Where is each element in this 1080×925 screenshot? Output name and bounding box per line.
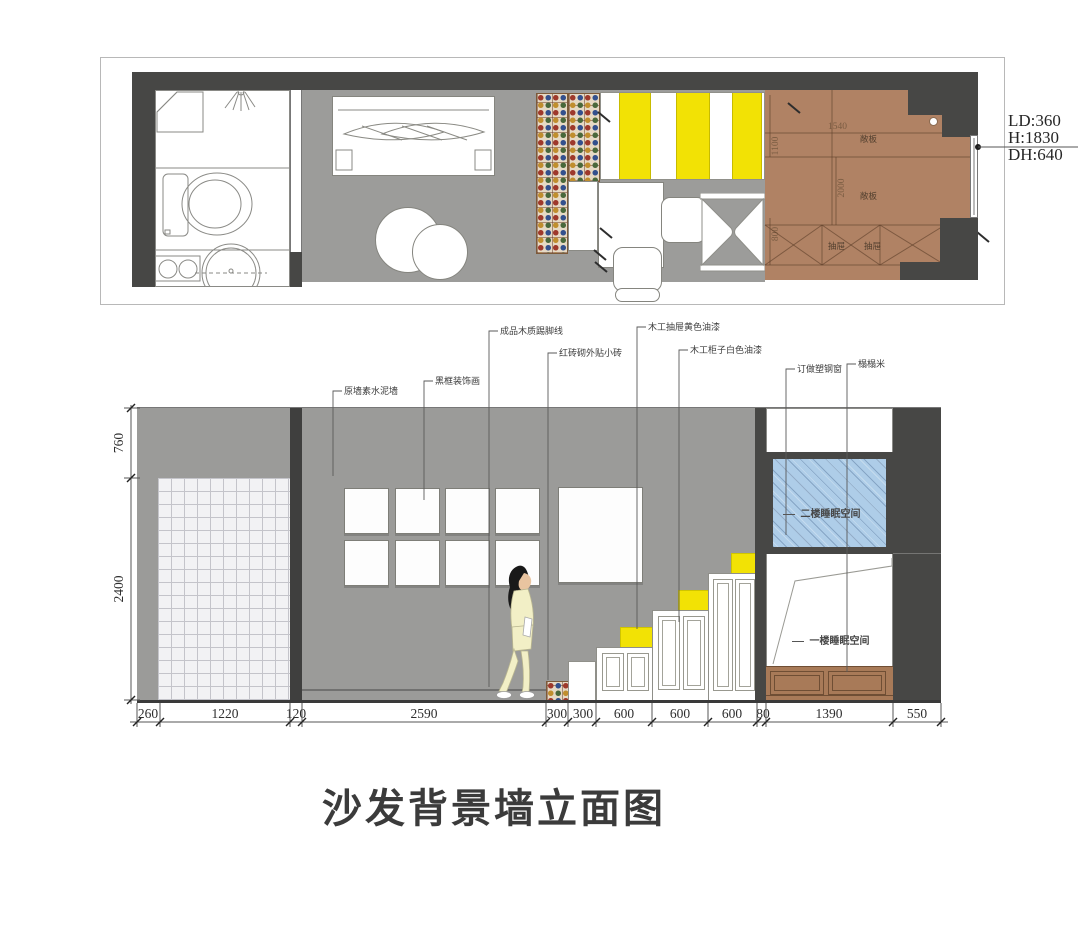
dim-bottom: 550 bbox=[907, 706, 927, 722]
drawing-sheet: 1540 1100 2000 800 敞板 敞板 抽屉 抽屉 LD:360 H:… bbox=[0, 0, 1080, 925]
stair-drawer-yellow-1 bbox=[620, 627, 654, 648]
callout-window: 订做塑钢窗 bbox=[797, 362, 842, 375]
plan-window-note: LD:360 H:1830 DH:640 bbox=[1008, 112, 1063, 163]
plan-bathroom-wall bbox=[290, 90, 302, 252]
washer-knobs-icon bbox=[155, 256, 200, 281]
dim-bottom: 300 bbox=[573, 706, 593, 722]
dim-bottom: 600 bbox=[722, 706, 742, 722]
toilet-icon bbox=[163, 173, 252, 236]
plan-stair-treads bbox=[600, 92, 765, 180]
picture-frame bbox=[445, 540, 490, 586]
elev-dark-pier bbox=[290, 408, 302, 700]
stair-drawer-yellow-2 bbox=[678, 590, 710, 611]
space-label-upper: 二楼睡眠空间 bbox=[783, 505, 860, 520]
picture-frame-large bbox=[558, 487, 643, 583]
cabinet-door bbox=[713, 579, 733, 691]
plan-wall-left bbox=[132, 72, 155, 287]
plan-dim-800: 800 bbox=[771, 227, 781, 241]
bed-outline bbox=[766, 554, 893, 668]
person-figure bbox=[497, 565, 547, 702]
plan-dim-1100: 1100 bbox=[771, 137, 781, 156]
elev-right-wall-seam bbox=[893, 553, 941, 554]
plan-tile-runner-left bbox=[536, 93, 568, 254]
plan-desk-chair bbox=[613, 247, 662, 292]
note-line-ld: LD:360 bbox=[1008, 112, 1063, 129]
plan-label-shelf-lower: 敞板 bbox=[860, 190, 877, 202]
elev-tile-wall bbox=[158, 478, 290, 700]
plan-tile-runner-right bbox=[568, 93, 600, 182]
stair-riser-yellow bbox=[732, 93, 762, 179]
cabinet-door bbox=[602, 653, 624, 691]
plan-bathroom-fixtures bbox=[155, 90, 290, 287]
elev-brick-tile-base bbox=[546, 681, 570, 702]
dim-bottom: 120 bbox=[286, 706, 306, 722]
plan-wall-bottom-band bbox=[900, 262, 978, 280]
callout-cement-wall: 原墙素水泥墙 bbox=[344, 384, 398, 397]
dim-bottom: 260 bbox=[138, 706, 158, 722]
callout-brick-tile: 红砖砌外贴小砖 bbox=[559, 346, 622, 359]
note-line-h: H:1830 bbox=[1008, 129, 1063, 146]
callout-yellow-drawers: 木工抽屉黄色油漆 bbox=[648, 320, 720, 333]
cabinet-door bbox=[683, 616, 705, 690]
plan-wall-notch-top bbox=[908, 90, 978, 115]
elev-wall-top-left bbox=[137, 408, 290, 478]
picture-frame bbox=[344, 540, 389, 586]
dim-bottom: 1390 bbox=[816, 706, 843, 722]
plan-bifold-door bbox=[700, 193, 765, 272]
stair-riser-yellow bbox=[619, 93, 651, 179]
picture-frame bbox=[445, 488, 490, 534]
drawing-title: 沙发背景墙立面图 bbox=[322, 776, 666, 834]
space-label-lower: 一楼睡眠空间 bbox=[792, 632, 869, 647]
plan-wall-stub bbox=[290, 252, 302, 287]
callout-framed-art: 黑框装饰画 bbox=[435, 374, 480, 387]
note-line-dh: DH:640 bbox=[1008, 146, 1063, 163]
tatami-base bbox=[766, 666, 893, 700]
loft-window-glass bbox=[773, 459, 886, 547]
dim-left: 2400 bbox=[111, 576, 127, 603]
picture-frame bbox=[395, 540, 440, 586]
dim-bottom: 1220 bbox=[212, 706, 239, 722]
plan-wall-notch-step bbox=[942, 115, 978, 137]
elev-right-wall bbox=[893, 408, 941, 700]
plan-wall-top bbox=[132, 72, 978, 90]
picture-frame bbox=[495, 488, 540, 534]
plan-label-shelf-upper: 敞板 bbox=[860, 133, 877, 145]
plan-label-drawer-left: 抽屉 bbox=[828, 240, 845, 252]
callout-white-cabinets: 木工柜子白色油漆 bbox=[690, 343, 762, 356]
plan-ceiling-spot bbox=[929, 117, 938, 126]
dim-bottom: 2590 bbox=[411, 706, 438, 722]
tatami-drawer bbox=[828, 671, 886, 695]
dim-left: 760 bbox=[111, 433, 127, 453]
dim-bottom: 300 bbox=[547, 706, 567, 722]
elev-wall-left-col bbox=[137, 478, 158, 700]
picture-frame bbox=[344, 488, 389, 534]
plan-sofa-cushions bbox=[332, 96, 495, 176]
shower-icon bbox=[225, 90, 255, 111]
plan-dim-2000: 2000 bbox=[837, 179, 847, 198]
cabinet-door bbox=[627, 653, 649, 691]
plan-cabinet-block bbox=[568, 181, 598, 251]
tatami-drawer bbox=[770, 671, 824, 695]
plan-window bbox=[970, 135, 978, 218]
dim-bottom: 600 bbox=[670, 706, 690, 722]
callout-skirting: 成品木质踢脚线 bbox=[500, 324, 563, 337]
callout-tatami: 榻榻米 bbox=[858, 357, 885, 370]
plan-round-table-small bbox=[412, 224, 468, 280]
stair-cabinet-3 bbox=[708, 573, 759, 701]
cabinet-door bbox=[735, 579, 755, 691]
stair-cabinet-1 bbox=[596, 647, 654, 701]
picture-frame bbox=[395, 488, 440, 534]
stair-step-low bbox=[568, 661, 596, 700]
dim-bottom: 80 bbox=[756, 706, 770, 722]
tatami-plinth-line bbox=[766, 695, 893, 696]
cabinet-door bbox=[658, 616, 680, 690]
plan-dim-1540: 1540 bbox=[828, 122, 847, 132]
plan-label-drawer-right: 抽屉 bbox=[864, 240, 881, 252]
plan-desk-chair-back bbox=[615, 288, 660, 302]
stair-cabinet-2 bbox=[652, 610, 710, 701]
dim-bottom: 600 bbox=[614, 706, 634, 722]
stair-riser-yellow bbox=[676, 93, 710, 179]
elev-divider-wall bbox=[755, 408, 766, 700]
